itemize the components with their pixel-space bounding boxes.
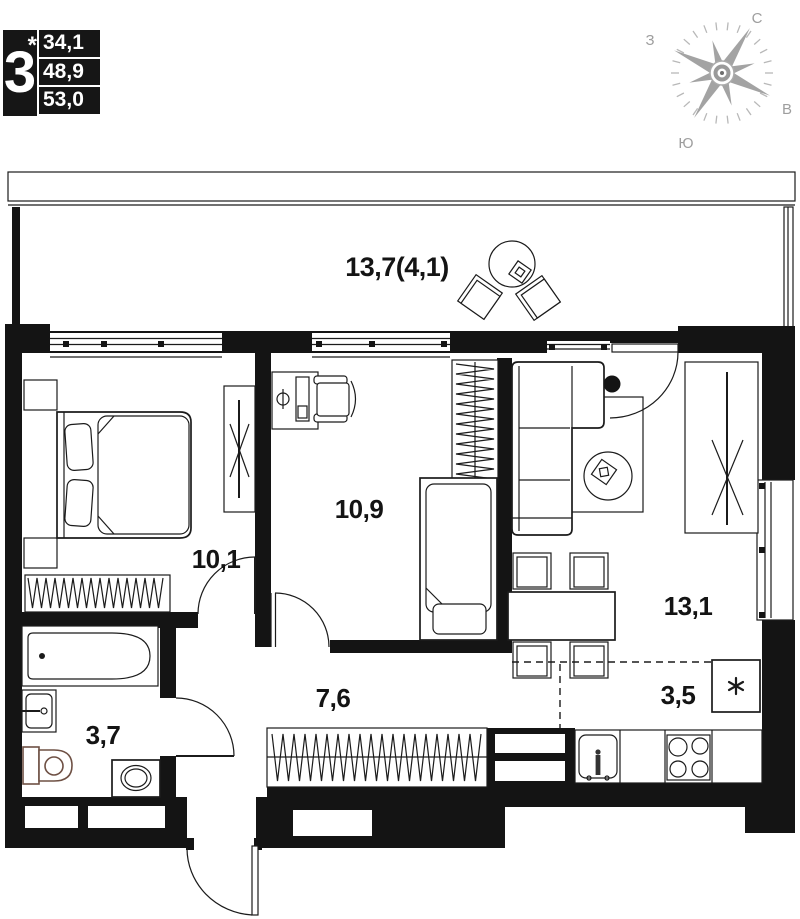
wardrobe-icon [224, 386, 255, 512]
corner-sofa-icon [512, 362, 604, 535]
room-label-bathroom: 3,7 [86, 720, 121, 750]
round-table-icon [489, 241, 535, 287]
dining-table-icon [508, 592, 615, 640]
kitchen-sink-icon [579, 735, 617, 780]
fridge-icon [712, 660, 760, 712]
desk-icon [272, 372, 318, 429]
open-wardrobe-icon [25, 575, 170, 612]
chair-icon [570, 553, 608, 589]
single-bed-icon [420, 478, 497, 640]
hallway-furniture [267, 728, 487, 787]
nightstand-icon [24, 380, 57, 410]
living-room-furniture [508, 362, 758, 678]
floor-plan-page: 3 * 34,1 48,9 53,0 [0, 0, 800, 919]
bathroom-fixtures [22, 626, 160, 797]
room-label-living: 13,1 [664, 591, 713, 621]
desk-chair-icon [314, 376, 356, 422]
compass-east: В [782, 101, 792, 118]
sink-icon [22, 690, 56, 732]
room-label-bedroom: 10,1 [192, 544, 241, 574]
child-room-furniture [272, 360, 498, 640]
window-icon [50, 333, 222, 357]
bathroom-door [176, 698, 234, 756]
entrance-door [187, 846, 258, 915]
chair-icon [513, 553, 551, 589]
toilet-icon [23, 747, 72, 784]
compass-west: З [645, 32, 654, 49]
bathtub-icon [22, 626, 158, 686]
compass-north: С [752, 10, 763, 27]
balcony-furniture [458, 241, 561, 320]
open-wardrobe-icon [267, 728, 487, 787]
room-label-balcony: 13,7(4,1) [345, 252, 449, 282]
floor-lamp-icon [604, 376, 621, 393]
stove-icon [667, 735, 710, 780]
floor-plan-drawing: С З В Ю [0, 0, 800, 919]
bedroom-furniture [24, 380, 255, 612]
wardrobe-icon [685, 362, 758, 533]
washing-machine-icon [112, 760, 160, 797]
window-icon [757, 480, 793, 620]
chair-icon [458, 275, 503, 320]
double-bed-icon [57, 412, 191, 538]
room-label-kitchen: 3,5 [661, 680, 696, 710]
compass-south: Ю [678, 135, 693, 152]
window-icon [312, 333, 450, 357]
chair-icon [513, 642, 551, 678]
compass-icon: С З В Ю [645, 10, 792, 152]
child-room-door [271, 593, 329, 647]
chair-icon [570, 642, 608, 678]
coffee-table-icon [584, 452, 632, 500]
room-label-hall: 7,6 [316, 683, 351, 713]
open-wardrobe-icon [452, 360, 498, 483]
room-label-child-room: 10,9 [335, 494, 384, 524]
nightstand-icon [24, 538, 57, 568]
